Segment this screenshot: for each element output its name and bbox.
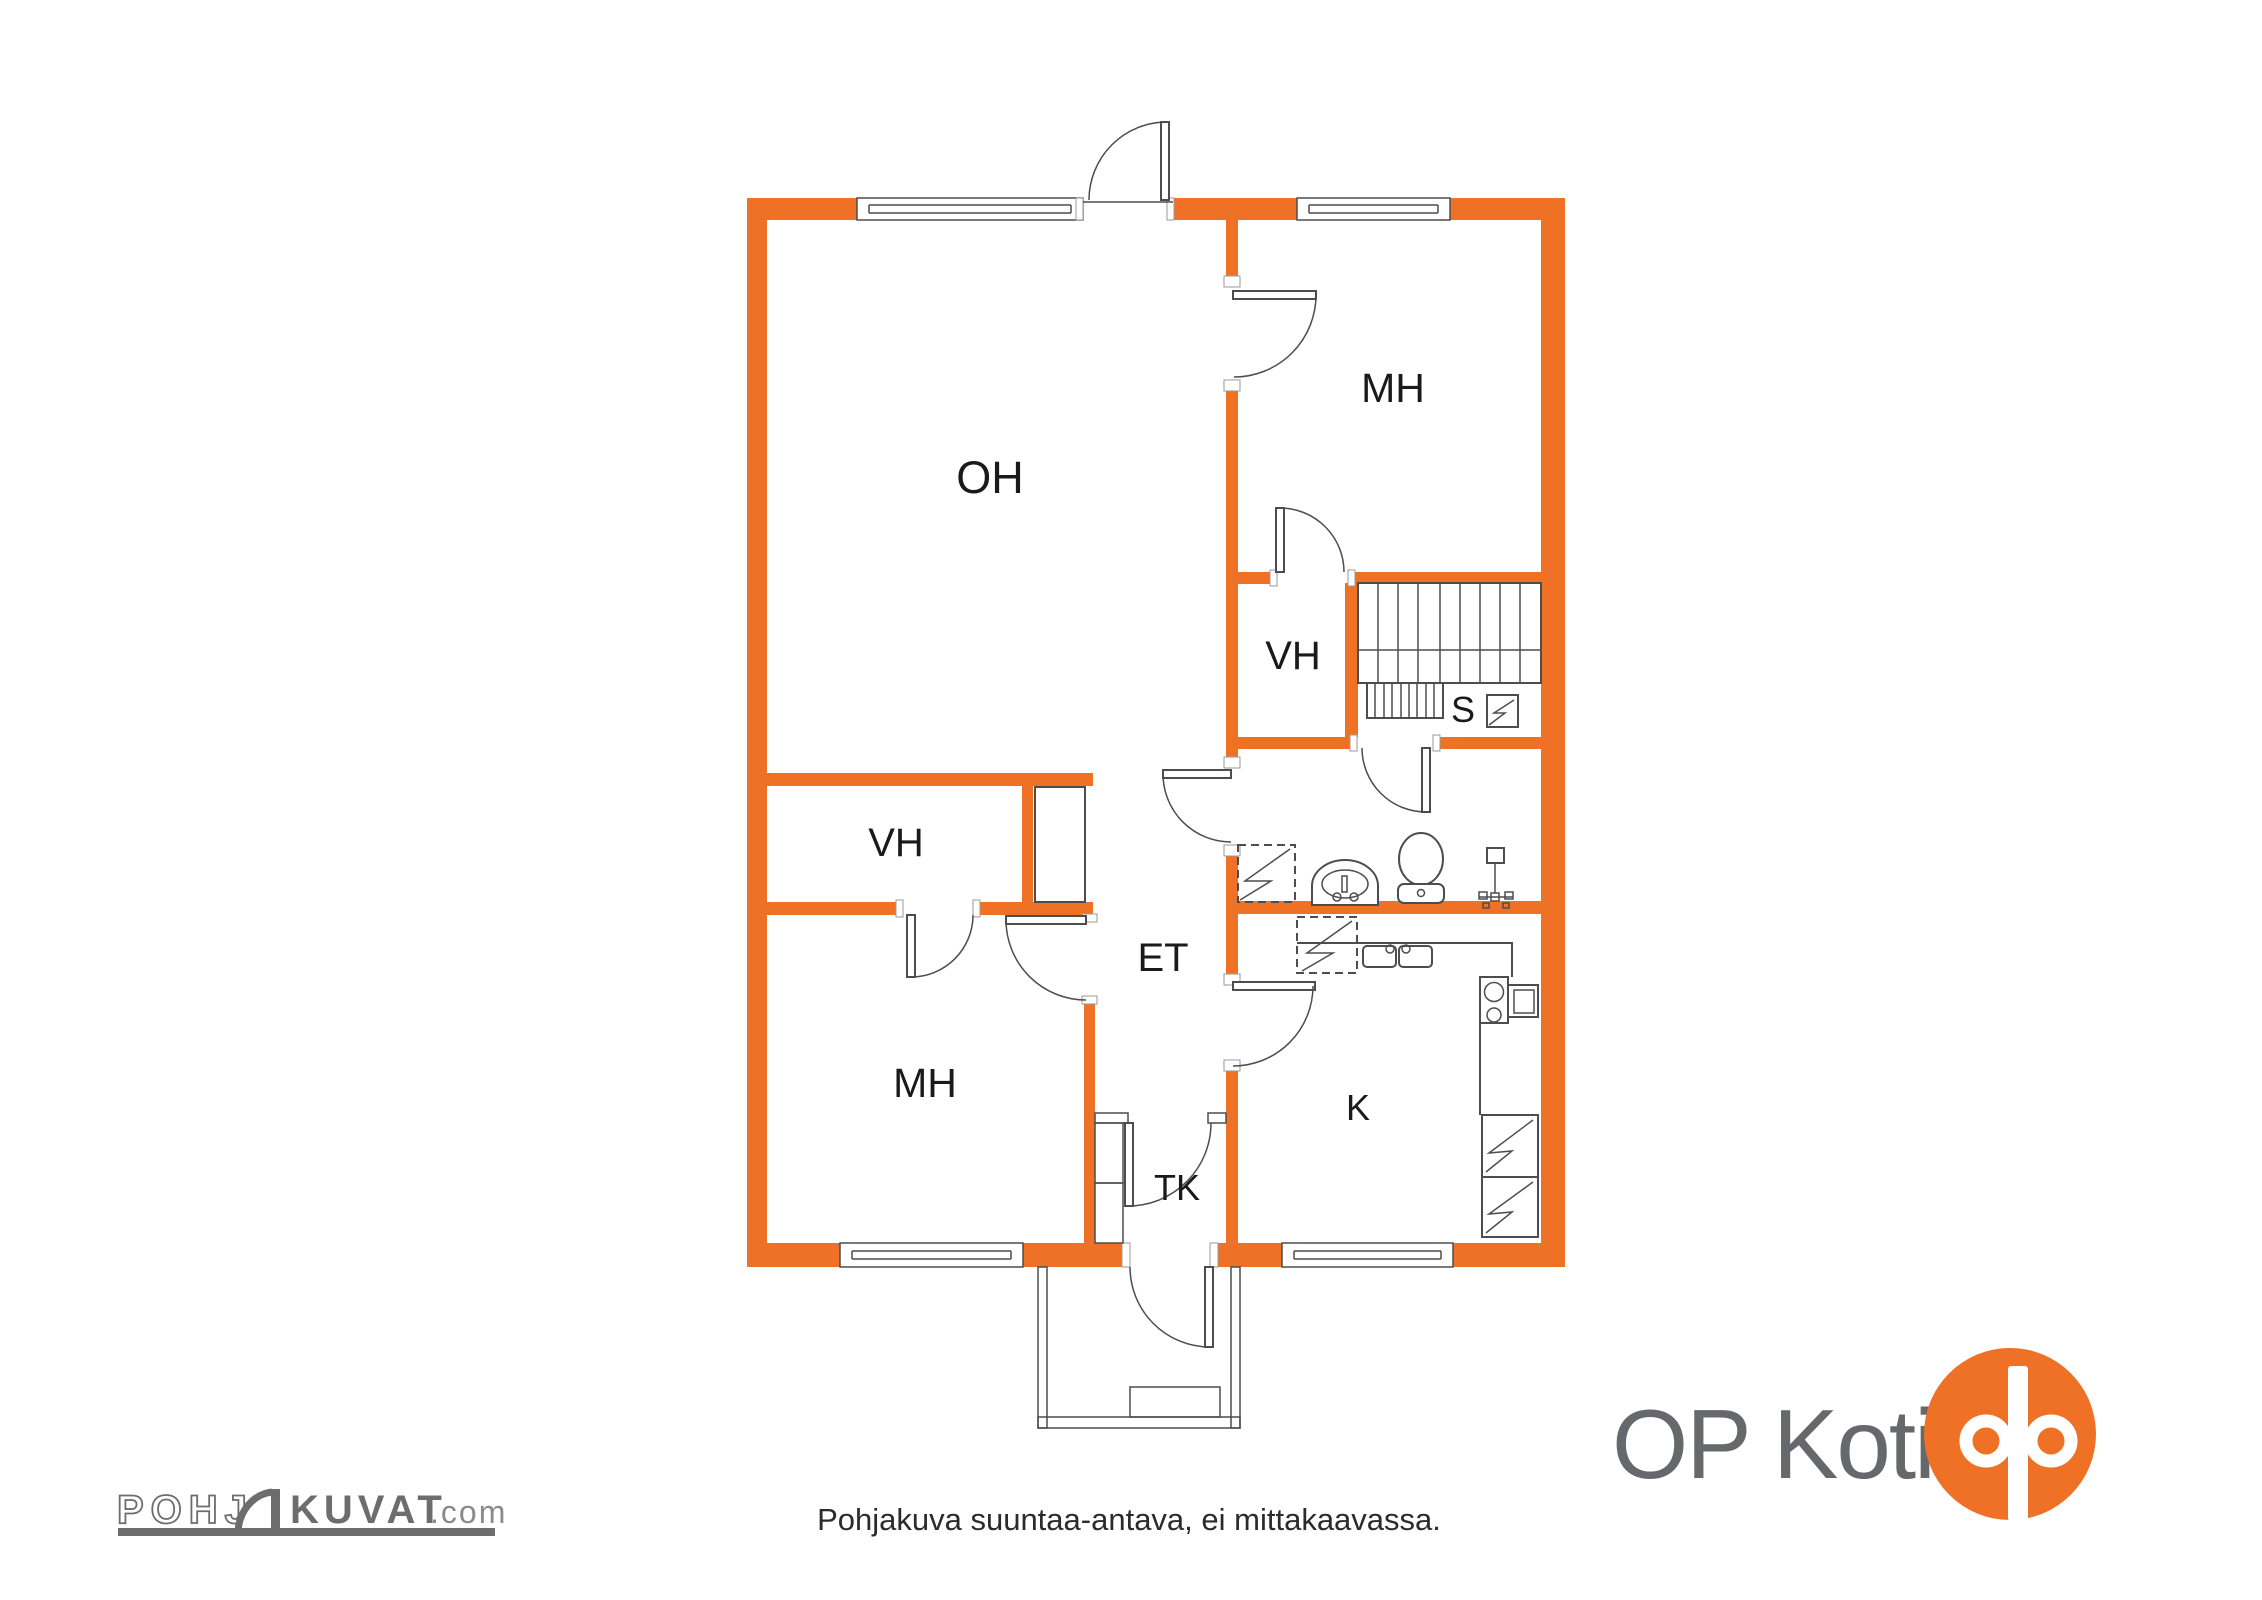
window-icon (840, 1243, 1023, 1267)
wall-segment (747, 198, 857, 220)
door-swing-icon bathroom-door (1163, 770, 1231, 842)
wall-segment (1023, 1243, 1130, 1267)
wall-segment (747, 1243, 840, 1267)
room-label-vh-right: VH (1265, 634, 1321, 678)
wall-segment (767, 902, 903, 915)
kitchen-sink-icon (1363, 945, 1432, 967)
toilet-icon (1398, 833, 1444, 903)
window-icon (857, 198, 1083, 220)
shower-tap-icon (1479, 848, 1513, 908)
exterior-walls (747, 198, 1565, 1267)
wall-segment (1226, 572, 1277, 584)
water-heater-icon (1238, 845, 1295, 902)
wall-segment (1084, 998, 1095, 1243)
wall-segment (1226, 737, 1357, 749)
bathroom-fixtures (1238, 833, 1513, 908)
porch-step (1130, 1387, 1220, 1417)
door-swing-icon kitchen-door (1233, 982, 1315, 1066)
room-label-mh-bottom: MH (893, 1060, 957, 1106)
door-swing-icon vh-right-to-mh-door (1276, 508, 1344, 572)
door-swing-icon porch-door (1130, 1267, 1213, 1347)
vh-doorway-panel (1035, 787, 1085, 902)
kitchen-fixtures (1297, 917, 1538, 1237)
floorplan-image: OH MH VH S VH ET MH TK K Pohjakuva suunt… (0, 0, 2262, 1600)
door-swing-icon landing-to-bathroom-door (1362, 748, 1430, 812)
room-label-stairs-s: S (1451, 689, 1475, 730)
wall-segment (1345, 583, 1358, 737)
wall-segment (973, 902, 1093, 915)
wall-segment (1210, 1243, 1282, 1267)
wall-segment (1453, 1243, 1565, 1267)
wall-segment (1022, 786, 1033, 902)
disclaimer-text: Pohjakuva suuntaa-antava, ei mittakaavas… (817, 1502, 1441, 1537)
room-label-oh: OH (956, 452, 1024, 503)
pohjakuvat-logo-part2: KUVAT (290, 1488, 447, 1532)
wall-segment (1433, 737, 1541, 749)
door-swing-icon et-to-mh-door (1006, 916, 1086, 1000)
room-label-mh-top: MH (1361, 365, 1425, 411)
freezer-icon (1482, 1177, 1538, 1237)
fridge-icon (1482, 1115, 1538, 1177)
door-swing-icon mh-bottom-door (907, 915, 973, 977)
stairs-icon (1358, 583, 1541, 683)
wall-segment (1173, 198, 1297, 220)
room-label-vh-left: VH (868, 821, 924, 865)
op-koti-logo: OP Koti (1612, 1348, 2096, 1521)
op-koti-text: OP Koti (1612, 1389, 1934, 1499)
staircase (1358, 583, 1541, 727)
window-icon (1297, 198, 1450, 220)
window-icon (1282, 1243, 1453, 1267)
wall-segment (1541, 198, 1565, 1267)
pohjakuvat-logo-part1: POHJ (117, 1488, 254, 1532)
door-swing-icon balcony-door (1083, 122, 1173, 202)
footer: Pohjakuva suuntaa-antava, ei mittakaavas… (117, 1348, 2096, 1537)
electrical-panel-icon (1487, 695, 1518, 727)
door-swing-icon mh-top-door (1233, 291, 1316, 377)
wall-segment (747, 198, 767, 1267)
wall-segment (767, 773, 1093, 786)
pohjakuvat-logo: POHJ KUVAT .com (117, 1488, 507, 1536)
room-label-et: ET (1137, 936, 1188, 980)
wall-segment (1226, 845, 1238, 985)
room-labels: OH MH VH S VH ET MH TK K (868, 365, 1475, 1208)
interior-walls (767, 220, 1541, 1243)
wall-segment (1226, 1060, 1238, 1243)
sink-icon (1312, 860, 1378, 905)
dishwasher-icon (1297, 917, 1357, 973)
pohjakuvat-logo-suffix: .com (430, 1494, 507, 1530)
room-label-k: K (1346, 1087, 1370, 1128)
stove-icon (1480, 977, 1538, 1023)
room-label-tk: TK (1154, 1167, 1200, 1208)
op-logo-icon (1924, 1348, 2096, 1521)
